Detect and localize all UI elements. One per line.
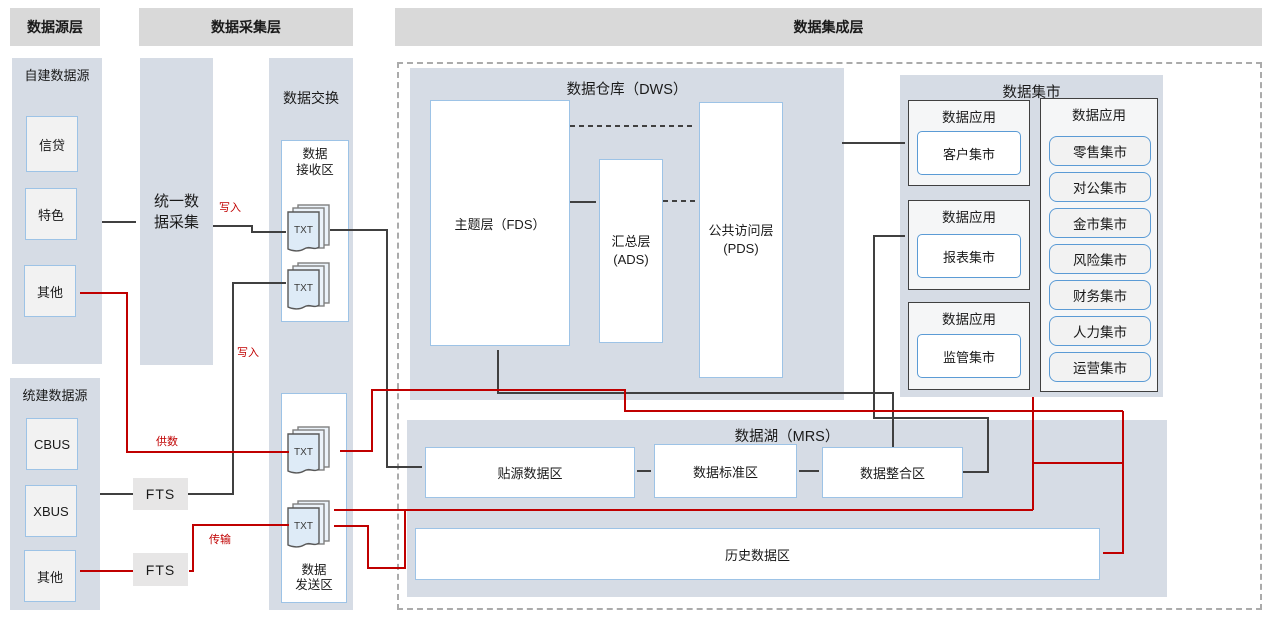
box-cbus: CBUS: [26, 418, 78, 470]
receive-zone-line2: 接收区: [282, 163, 348, 179]
header-data-collection-layer: 数据采集层: [139, 8, 353, 46]
header-data-integration-layer: 数据集成层: [395, 8, 1262, 46]
edge-label-supply: 供数: [156, 433, 178, 449]
frame-data-app-regulatory: 数据应用 监管集市: [908, 302, 1030, 390]
box-send-zone: 数据 发送区: [281, 393, 347, 603]
unified-collection-line1: 统一数: [154, 191, 199, 212]
txt-file-icon-receive-1: TXT: [286, 204, 332, 254]
frame-data-app-report: 数据应用 报表集市: [908, 200, 1030, 290]
unified-sources-title: 统建数据源: [10, 385, 100, 404]
dws-title: 数据仓库（DWS）: [410, 78, 844, 99]
box-credit: 信贷: [26, 116, 78, 172]
mart-hr: 人力集市: [1049, 316, 1151, 346]
box-ads: 汇总层 (ADS): [599, 159, 663, 343]
box-special: 特色: [25, 188, 77, 240]
frame-data-app-customer: 数据应用 客户集市: [908, 100, 1030, 186]
mart-corporate: 对公集市: [1049, 172, 1151, 202]
edge-label-transfer: 传输: [209, 531, 231, 547]
ads-line2: (ADS): [611, 251, 650, 269]
mart-report: 报表集市: [917, 234, 1021, 278]
svg-text:TXT: TXT: [294, 447, 313, 458]
edge-label-write-2: 写入: [237, 344, 259, 360]
mart-financial-market: 金市集市: [1049, 208, 1151, 238]
unified-collection-line2: 据采集: [154, 212, 199, 233]
data-exchange-title: 数据交换: [269, 88, 353, 108]
box-pds: 公共访问层 (PDS): [699, 102, 783, 378]
zone-data-consolidation: 数据整合区: [822, 447, 963, 498]
architecture-diagram: 数据源层 数据采集层 数据集成层 自建数据源 信贷 特色 其他 统建数据源 CB…: [0, 0, 1280, 627]
box-other-unified: 其他: [24, 550, 76, 602]
box-fds: 主题层（FDS）: [430, 100, 570, 346]
box-fts-lower: FTS: [133, 553, 188, 586]
container-unified-data-collection: 统一数 据采集: [140, 58, 213, 365]
zone-history-data: 历史数据区: [415, 528, 1100, 580]
svg-text:TXT: TXT: [294, 225, 313, 236]
pds-line2: (PDS): [708, 240, 773, 258]
send-zone-line1: 数据: [282, 563, 346, 579]
svg-text:TXT: TXT: [294, 521, 313, 532]
zone-source-data: 贴源数据区: [425, 447, 635, 498]
frame-data-app-business: 数据应用 零售集市 对公集市 金市集市 风险集市 财务集市 人力集市 运营集市: [1040, 98, 1158, 392]
mart-operations: 运营集市: [1049, 352, 1151, 382]
edge-label-write-1: 写入: [219, 199, 241, 215]
txt-file-icon-receive-2: TXT: [286, 262, 332, 312]
data-app-label: 数据应用: [909, 308, 1029, 328]
mart-retail: 零售集市: [1049, 136, 1151, 166]
data-app-label: 数据应用: [1041, 104, 1157, 124]
box-fts-upper: FTS: [133, 478, 188, 510]
receive-zone-line1: 数据: [282, 147, 348, 163]
mrs-title: 数据湖（MRS）: [407, 425, 1167, 446]
mart-customer: 客户集市: [917, 131, 1021, 175]
mart-finance: 财务集市: [1049, 280, 1151, 310]
zone-data-standard: 数据标准区: [654, 444, 797, 498]
txt-file-icon-send-1: TXT: [286, 426, 332, 476]
ads-line1: 汇总层: [611, 233, 650, 251]
box-other-self: 其他: [24, 265, 76, 317]
header-data-source-layer: 数据源层: [10, 8, 100, 46]
send-zone-line2: 发送区: [282, 578, 346, 594]
mart-risk: 风险集市: [1049, 244, 1151, 274]
pds-line1: 公共访问层: [708, 222, 773, 240]
box-xbus: XBUS: [25, 485, 77, 537]
self-built-title: 自建数据源: [12, 65, 102, 84]
svg-text:TXT: TXT: [294, 283, 313, 294]
data-app-label: 数据应用: [909, 206, 1029, 226]
txt-file-icon-send-2: TXT: [286, 500, 332, 550]
mart-regulatory: 监管集市: [917, 334, 1021, 378]
data-app-label: 数据应用: [909, 106, 1029, 126]
